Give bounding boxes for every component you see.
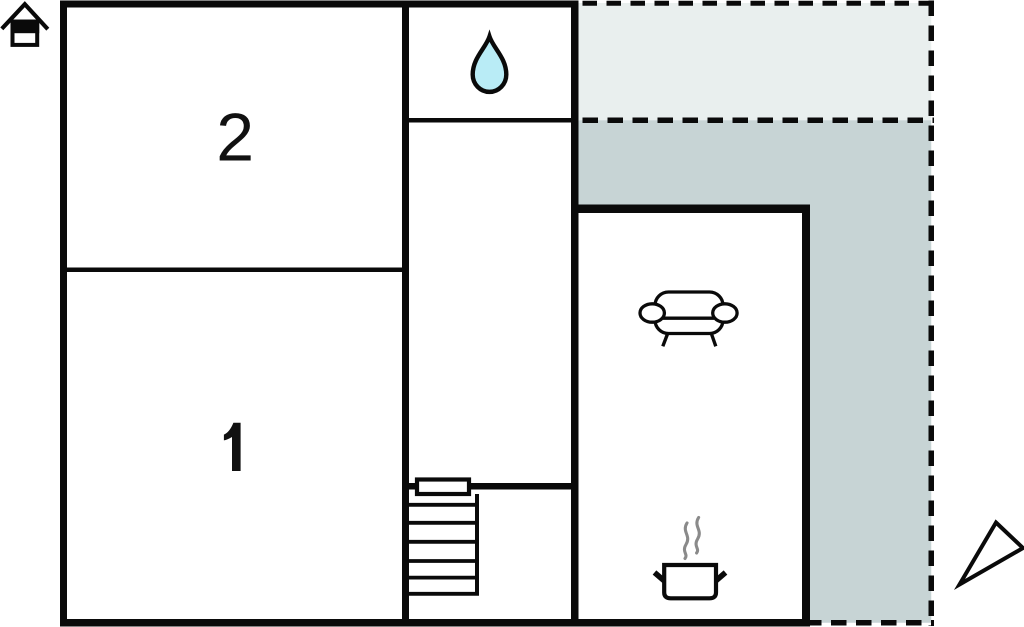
svg-text:2: 2 bbox=[216, 99, 254, 175]
